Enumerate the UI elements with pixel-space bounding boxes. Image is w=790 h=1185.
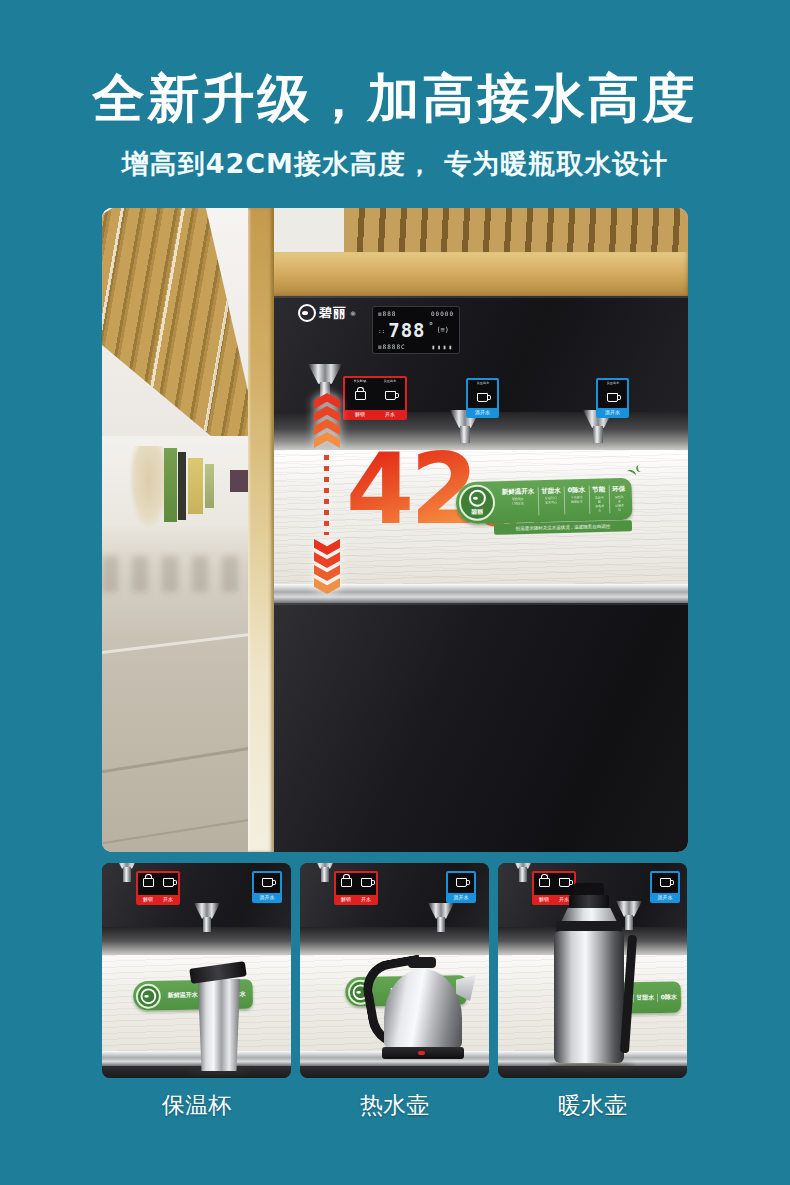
banner-feature: 0陈水 不留陈水 健康饮水 — [564, 486, 589, 515]
caption-thermos-flask: 暖水壶 — [498, 1090, 687, 1121]
display-top-row: ≡888 00000 — [378, 310, 454, 317]
lock-icon — [143, 878, 154, 887]
green-glass-door — [164, 448, 177, 522]
brand-name: 碧丽 — [319, 304, 347, 322]
page-subtitle: 增高到42CM接水高度， 专为暖瓶取水设计 — [0, 146, 790, 182]
height-measure-arrow — [314, 393, 340, 589]
label-warm-water: 温开水 — [252, 871, 282, 903]
label-hot-water: 解锁 开水 — [334, 871, 378, 905]
wood-pillar — [248, 208, 274, 852]
brand-logo-icon — [298, 304, 316, 322]
wood-beam — [248, 252, 688, 300]
label-warm-water-1: 按压出水 温开水 — [466, 378, 499, 418]
chevron-down-icon — [314, 539, 340, 555]
label-footer: 解锁 开水 — [345, 410, 405, 418]
label-cells: 长按解锁 按压出水 — [345, 378, 405, 410]
label-cell-warm: 按压出水 — [468, 380, 497, 408]
label-warm-water: 温开水 — [650, 871, 680, 903]
kettle-spout — [456, 975, 476, 1001]
promo-page: 全新升级，加高接水高度 增高到42CM接水高度， 专为暖瓶取水设计 — [0, 0, 790, 1185]
cup-icon — [361, 878, 372, 887]
kettle-power-light — [418, 1051, 425, 1055]
chevron-up-icon — [314, 432, 340, 448]
label-hint-hot: 按压出水 — [384, 379, 397, 383]
cup-icon — [262, 878, 273, 887]
banner-brand-badge — [136, 983, 161, 1008]
label-hot-water: 解锁 开水 — [136, 871, 180, 905]
label-hint-unlock: 长按解锁 — [354, 379, 367, 383]
tap-warm-water — [194, 903, 220, 933]
flask-cap-ring — [569, 895, 609, 908]
wall-picture — [230, 470, 248, 492]
label-text-unlock: 解锁 — [345, 410, 375, 418]
brand-logo: 碧丽 ® — [298, 304, 356, 322]
display-bottom-row: ≡8888C ▮▮▮▮ — [378, 343, 454, 350]
display-right-segments: (≡) — [436, 326, 449, 334]
alcove-wood-slats — [344, 208, 688, 254]
cup-icon — [456, 878, 467, 887]
wall-mural — [130, 446, 168, 528]
hallway-scene — [102, 208, 272, 852]
lock-icon — [355, 391, 366, 400]
tap-warm-water — [428, 903, 454, 933]
electric-kettle — [364, 955, 482, 1069]
flask-shoulder — [561, 908, 617, 922]
far-glass-panel — [205, 464, 214, 508]
display-degree: ° — [429, 322, 434, 331]
banner-brand-icon — [468, 489, 485, 506]
thumbnail-thermos-flask: 解锁 开水 温开水 碧丽 新鲜温开水 甘甜水 0陈水 — [498, 863, 687, 1078]
display-main-row: :: 788 ° (≡) — [378, 321, 454, 340]
banner-brand-icon — [140, 988, 156, 1004]
label-warm-water-2: 按压出水 温开水 — [596, 378, 629, 418]
label-cell-hot: 按压出水 — [375, 378, 405, 410]
feature-banner: 碧丽 新鲜温开水 现烧现饮 口感更佳 甘甜水 甘甜可口 滋润身心 0陈水 不留陈… — [455, 478, 632, 525]
cup-icon — [607, 393, 618, 402]
caption-thermos-cup: 保温杯 — [102, 1090, 291, 1121]
lock-icon — [341, 878, 352, 887]
thermos-flask — [546, 883, 638, 1071]
registered-mark: ® — [350, 310, 356, 317]
thumbnail-kettle: 解锁 开水 温开水 新鲜温开水 节能 — [300, 863, 489, 1078]
label-warm-water: 温开水 — [446, 871, 476, 903]
cup-icon — [477, 393, 488, 402]
floor-reflection — [102, 556, 272, 592]
thumb-silver-trim — [102, 1051, 291, 1066]
display-level-bars: ▮▮▮▮ — [432, 343, 454, 350]
display-top-right: 00000 — [431, 310, 454, 317]
measure-dotted-line — [324, 455, 329, 535]
label-cell-warm: 按压出水 — [598, 380, 627, 408]
thumbnail-thermos-cup: 解锁 开水 温开水 新鲜温开水 甘甜水 0陈水 — [102, 863, 291, 1078]
cup-icon — [660, 878, 671, 887]
label-cell-unlock: 长按解锁 — [345, 378, 375, 410]
kettle-lid-knob — [408, 957, 436, 968]
label-hint-warm: 按压出水 — [476, 381, 489, 385]
banner-brand-badge: 碧丽 — [459, 484, 496, 521]
dispenser-lower-cabinet — [272, 603, 688, 852]
yellow-glass-door — [188, 458, 203, 514]
cup-icon — [163, 878, 174, 887]
dark-door-frame — [178, 452, 186, 520]
caption-kettle: 热水壶 — [300, 1090, 489, 1121]
display-top-left: ≡888 — [378, 310, 396, 317]
page-title: 全新升级，加高接水高度 — [0, 64, 790, 134]
alcove-ceiling — [274, 208, 344, 254]
thumb-niche — [300, 927, 489, 955]
banner-brand-name: 碧丽 — [471, 507, 483, 516]
banner-features: 新鲜温开水 现烧现饮 口感更佳 甘甜水 甘甜可口 滋润身心 0陈水 不留陈水 健… — [495, 484, 633, 516]
cup-icon — [385, 391, 396, 400]
kettle-body — [384, 969, 462, 1049]
thermos-cup — [196, 979, 242, 1071]
banner-feature: 新鲜温开水 现烧现饮 口感更佳 — [499, 487, 538, 517]
banner-feature: 环保 绿色环保 低碳生活 — [608, 485, 629, 514]
label-hot-water: 长按解锁 按压出水 解锁 开水 — [343, 376, 407, 420]
label-text-warm: 温开水 — [468, 408, 497, 416]
display-temperature: 788 — [388, 321, 425, 340]
display-bottom-left: ≡8888C — [378, 343, 406, 350]
hero-photo: 碧丽 ® ≡888 00000 :: 788 ° (≡) ≡8888C ▮▮▮▮ — [102, 208, 688, 852]
label-hint-warm: 按压出水 — [606, 381, 619, 385]
height-number: 42 — [346, 440, 474, 538]
banner-feature: 节能 高效节能 省电省心 — [588, 485, 609, 514]
display-side-segments: :: — [378, 327, 385, 334]
control-display: ≡888 00000 :: 788 ° (≡) ≡8888C ▮▮▮▮ — [372, 306, 460, 354]
label-text-warm: 温开水 — [598, 408, 627, 416]
banner-feature: 甘甜水 甘甜可口 滋润身心 — [537, 486, 564, 515]
flask-body — [554, 931, 624, 1063]
label-text-hot: 开水 — [375, 410, 405, 418]
